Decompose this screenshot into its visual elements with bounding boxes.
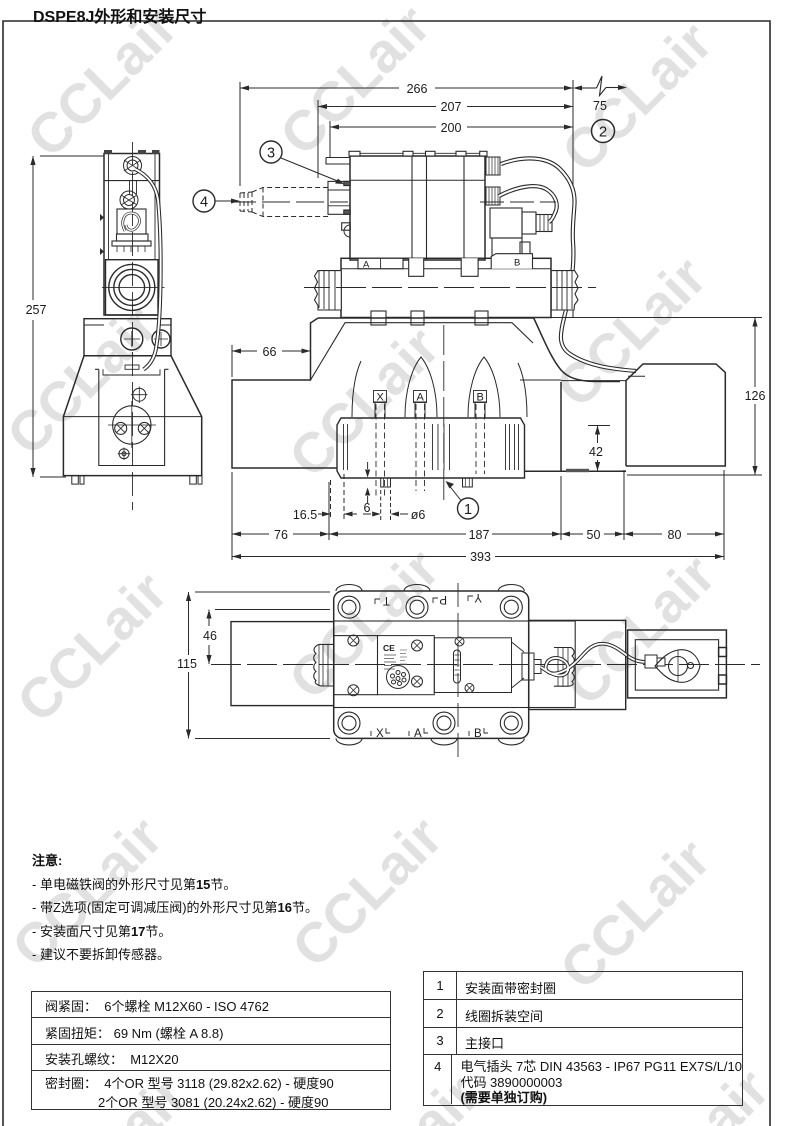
- svg-text:X: X: [377, 392, 385, 404]
- svg-text:X: X: [376, 728, 384, 740]
- svg-text:CCLair: CCLair: [550, 10, 724, 184]
- svg-text:3: 3: [267, 146, 275, 162]
- svg-text:6: 6: [364, 501, 371, 515]
- svg-text:16.5: 16.5: [293, 508, 317, 522]
- svg-text:A: A: [414, 728, 422, 740]
- svg-text:257: 257: [26, 303, 47, 317]
- svg-text:75: 75: [593, 99, 607, 113]
- svg-text:4: 4: [200, 195, 208, 211]
- svg-text:A: A: [363, 260, 370, 271]
- svg-text:ø6: ø6: [411, 508, 426, 522]
- svg-text:CCLair: CCLair: [5, 560, 179, 734]
- svg-text:A: A: [417, 392, 425, 404]
- svg-text:42: 42: [589, 445, 603, 459]
- svg-text:115: 115: [177, 657, 197, 671]
- svg-text:187: 187: [469, 528, 490, 542]
- svg-text:266: 266: [407, 82, 428, 96]
- svg-text:T: T: [383, 594, 390, 606]
- svg-text:Y: Y: [474, 591, 482, 603]
- svg-text:393: 393: [470, 550, 491, 564]
- svg-text:46: 46: [203, 629, 217, 643]
- svg-text:B: B: [477, 392, 484, 404]
- svg-text:50: 50: [587, 528, 601, 542]
- svg-text:80: 80: [668, 528, 682, 542]
- svg-text:76: 76: [274, 528, 288, 542]
- svg-text:200: 200: [441, 121, 462, 135]
- svg-text:2: 2: [599, 124, 607, 141]
- svg-text:P: P: [439, 593, 447, 605]
- svg-text:CE: CE: [383, 643, 395, 653]
- svg-text:207: 207: [441, 100, 462, 114]
- svg-text:1: 1: [464, 502, 472, 518]
- svg-text:B: B: [474, 728, 482, 740]
- svg-text:CCLair: CCLair: [277, 537, 451, 711]
- svg-text:66: 66: [263, 345, 277, 359]
- svg-text:126: 126: [745, 389, 766, 403]
- svg-text:B: B: [514, 258, 520, 269]
